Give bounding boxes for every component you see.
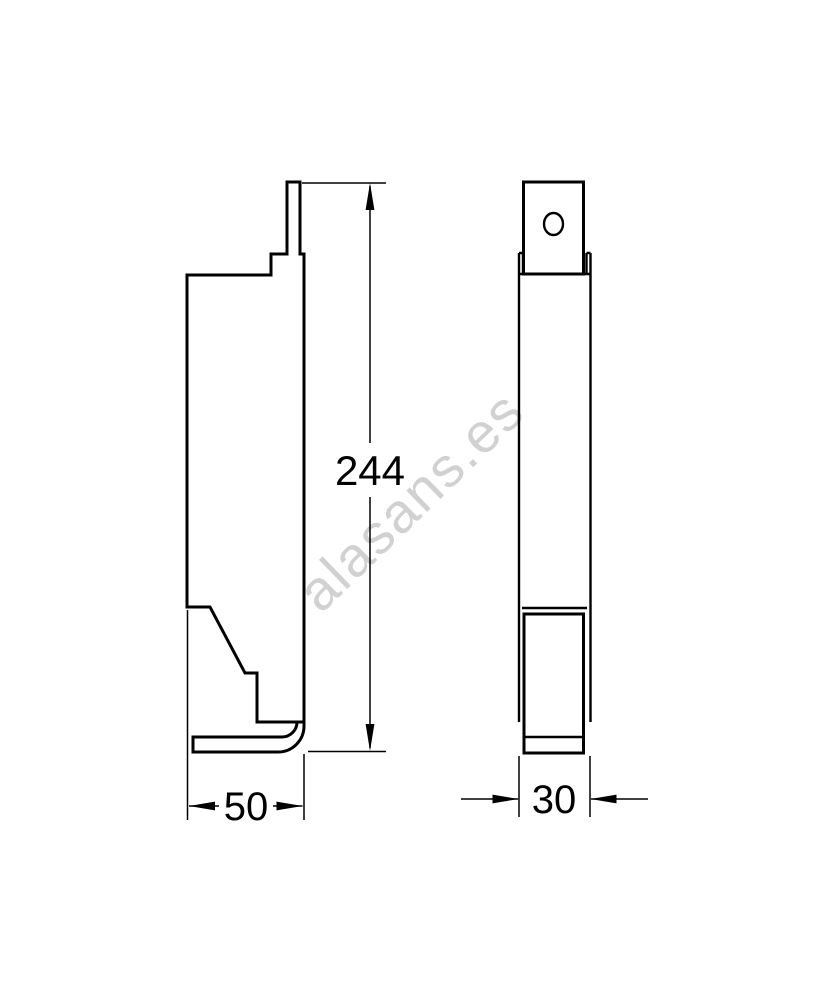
dimension-front-width-arrow-left [189, 802, 215, 811]
dimension-side-width-arrow-right [591, 795, 617, 804]
drawing-canvas: alasans.es 244 [0, 0, 833, 1000]
side-view-roller-cartridge [524, 614, 584, 753]
dimension-side-width: 30 [461, 756, 648, 822]
front-view-outline [187, 182, 304, 752]
dimension-height: 244 [302, 183, 405, 752]
side-view-tab [524, 182, 584, 274]
watermark-text: alasans.es [285, 378, 536, 623]
dimension-height-arrow-up [366, 183, 375, 210]
front-view [187, 182, 304, 752]
dimension-front-width-label: 50 [224, 785, 269, 829]
side-view [519, 182, 591, 753]
technical-drawing: alasans.es 244 [0, 0, 833, 1000]
dimension-side-width-arrow-left [493, 795, 519, 804]
watermark: alasans.es [285, 378, 536, 623]
dimension-side-width-label: 30 [532, 778, 577, 822]
dimension-height-arrow-down [366, 724, 375, 751]
dimension-front-width-arrow-right [277, 802, 303, 811]
dimension-height-label: 244 [335, 447, 405, 494]
